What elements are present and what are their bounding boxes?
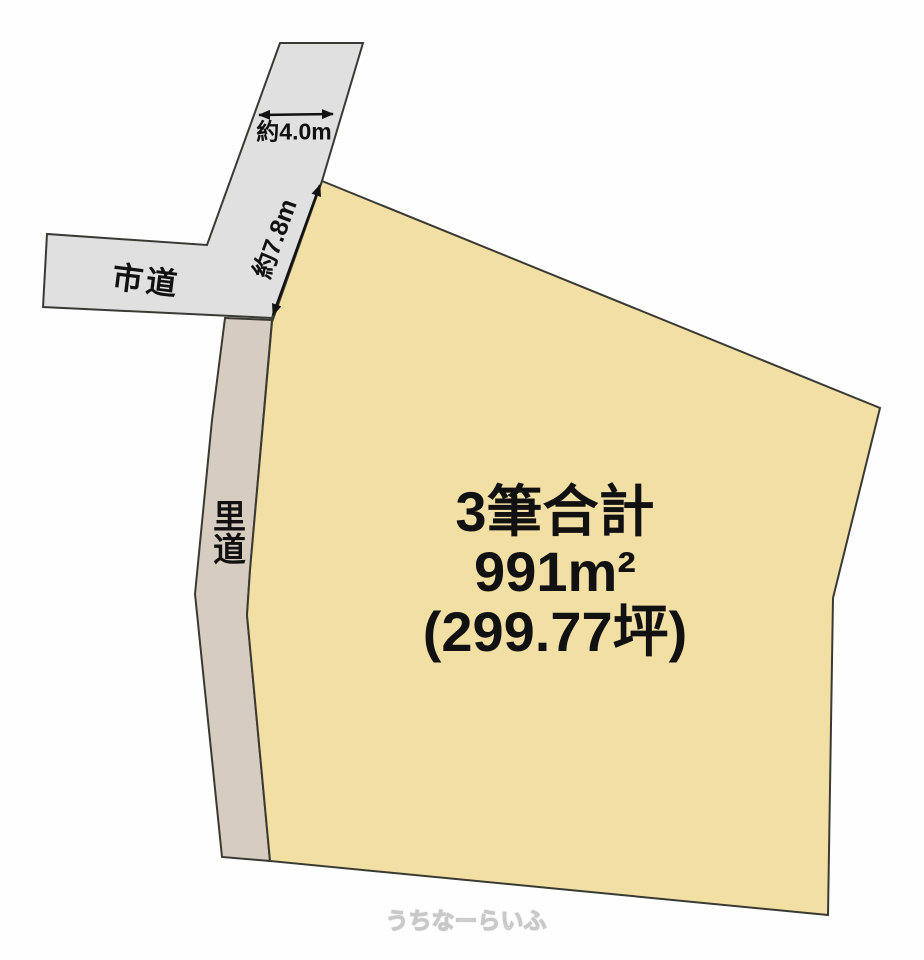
parcel-lot-count: 3筆合計 <box>423 482 688 542</box>
land-plot-diagram: 約4.0m 約7.8m 市道 里道 3筆合計 991m² (299.77坪) う… <box>0 0 924 960</box>
village-road-label: 里道 <box>211 499 244 565</box>
city-road-label: 市道 <box>110 261 181 300</box>
parcel-summary: 3筆合計 991m² (299.77坪) <box>423 482 688 662</box>
watermark: うちなーらいふ <box>386 910 547 933</box>
road-width-dimension-label: 約4.0m <box>256 121 331 144</box>
parcel-area-sqm: 991m² <box>423 542 688 602</box>
width-dimension-arrow <box>259 114 333 115</box>
parcel-area-tsubo: (299.77坪) <box>423 602 688 662</box>
